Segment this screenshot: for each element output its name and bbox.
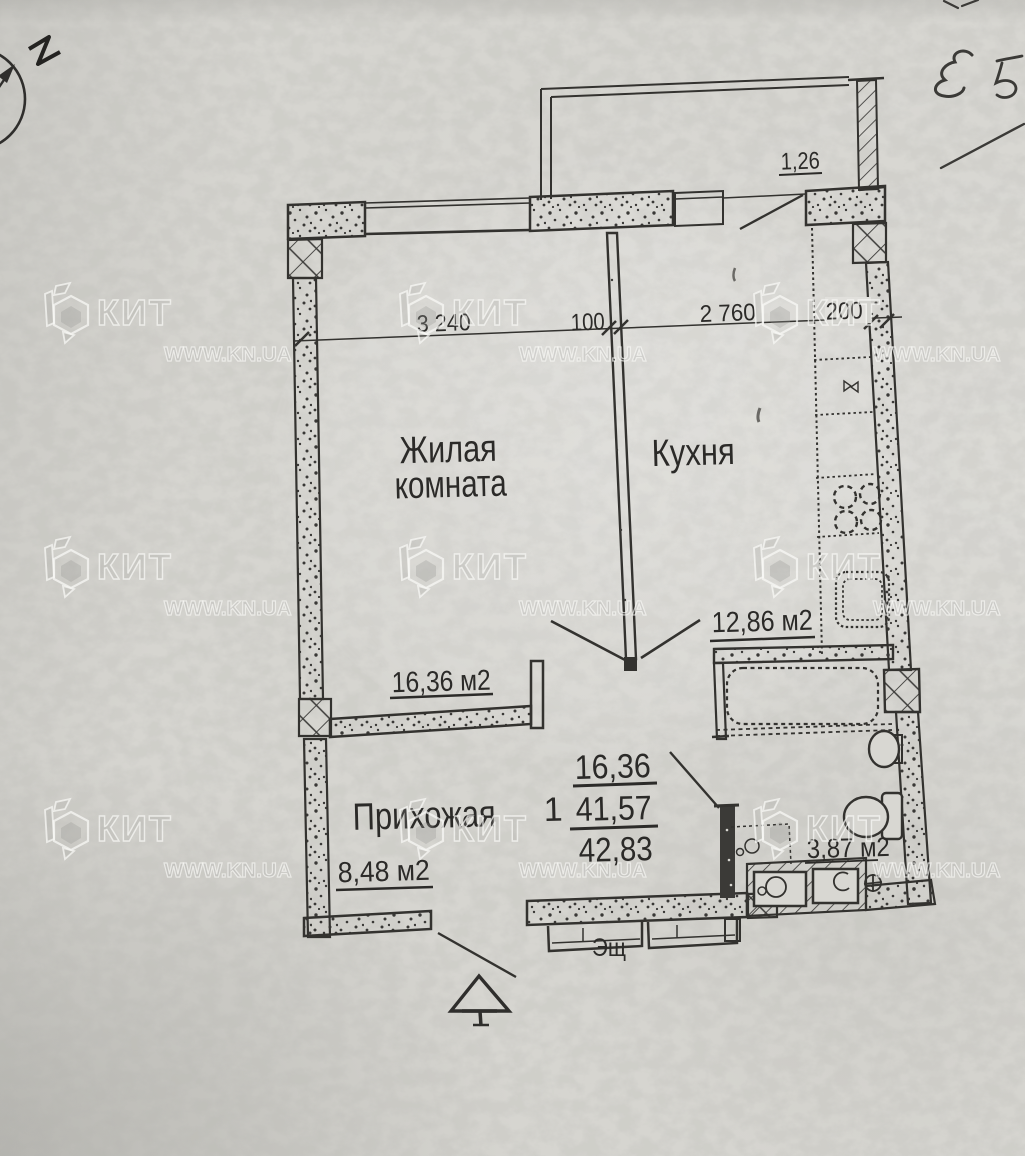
svg-text:Эщ: Эщ xyxy=(592,934,626,962)
svg-text:8,48 м2: 8,48 м2 xyxy=(337,855,430,889)
svg-text:1,26: 1,26 xyxy=(780,147,820,175)
svg-text:100: 100 xyxy=(570,308,605,336)
svg-text:2 760: 2 760 xyxy=(699,299,756,328)
svg-text:Кухня: Кухня xyxy=(651,431,735,475)
svg-text:41,57: 41,57 xyxy=(575,789,652,829)
svg-text:1: 1 xyxy=(543,791,563,829)
svg-text:комната: комната xyxy=(394,463,508,508)
svg-text:16,36: 16,36 xyxy=(574,747,651,787)
svg-text:12,86 м2: 12,86 м2 xyxy=(711,605,813,640)
